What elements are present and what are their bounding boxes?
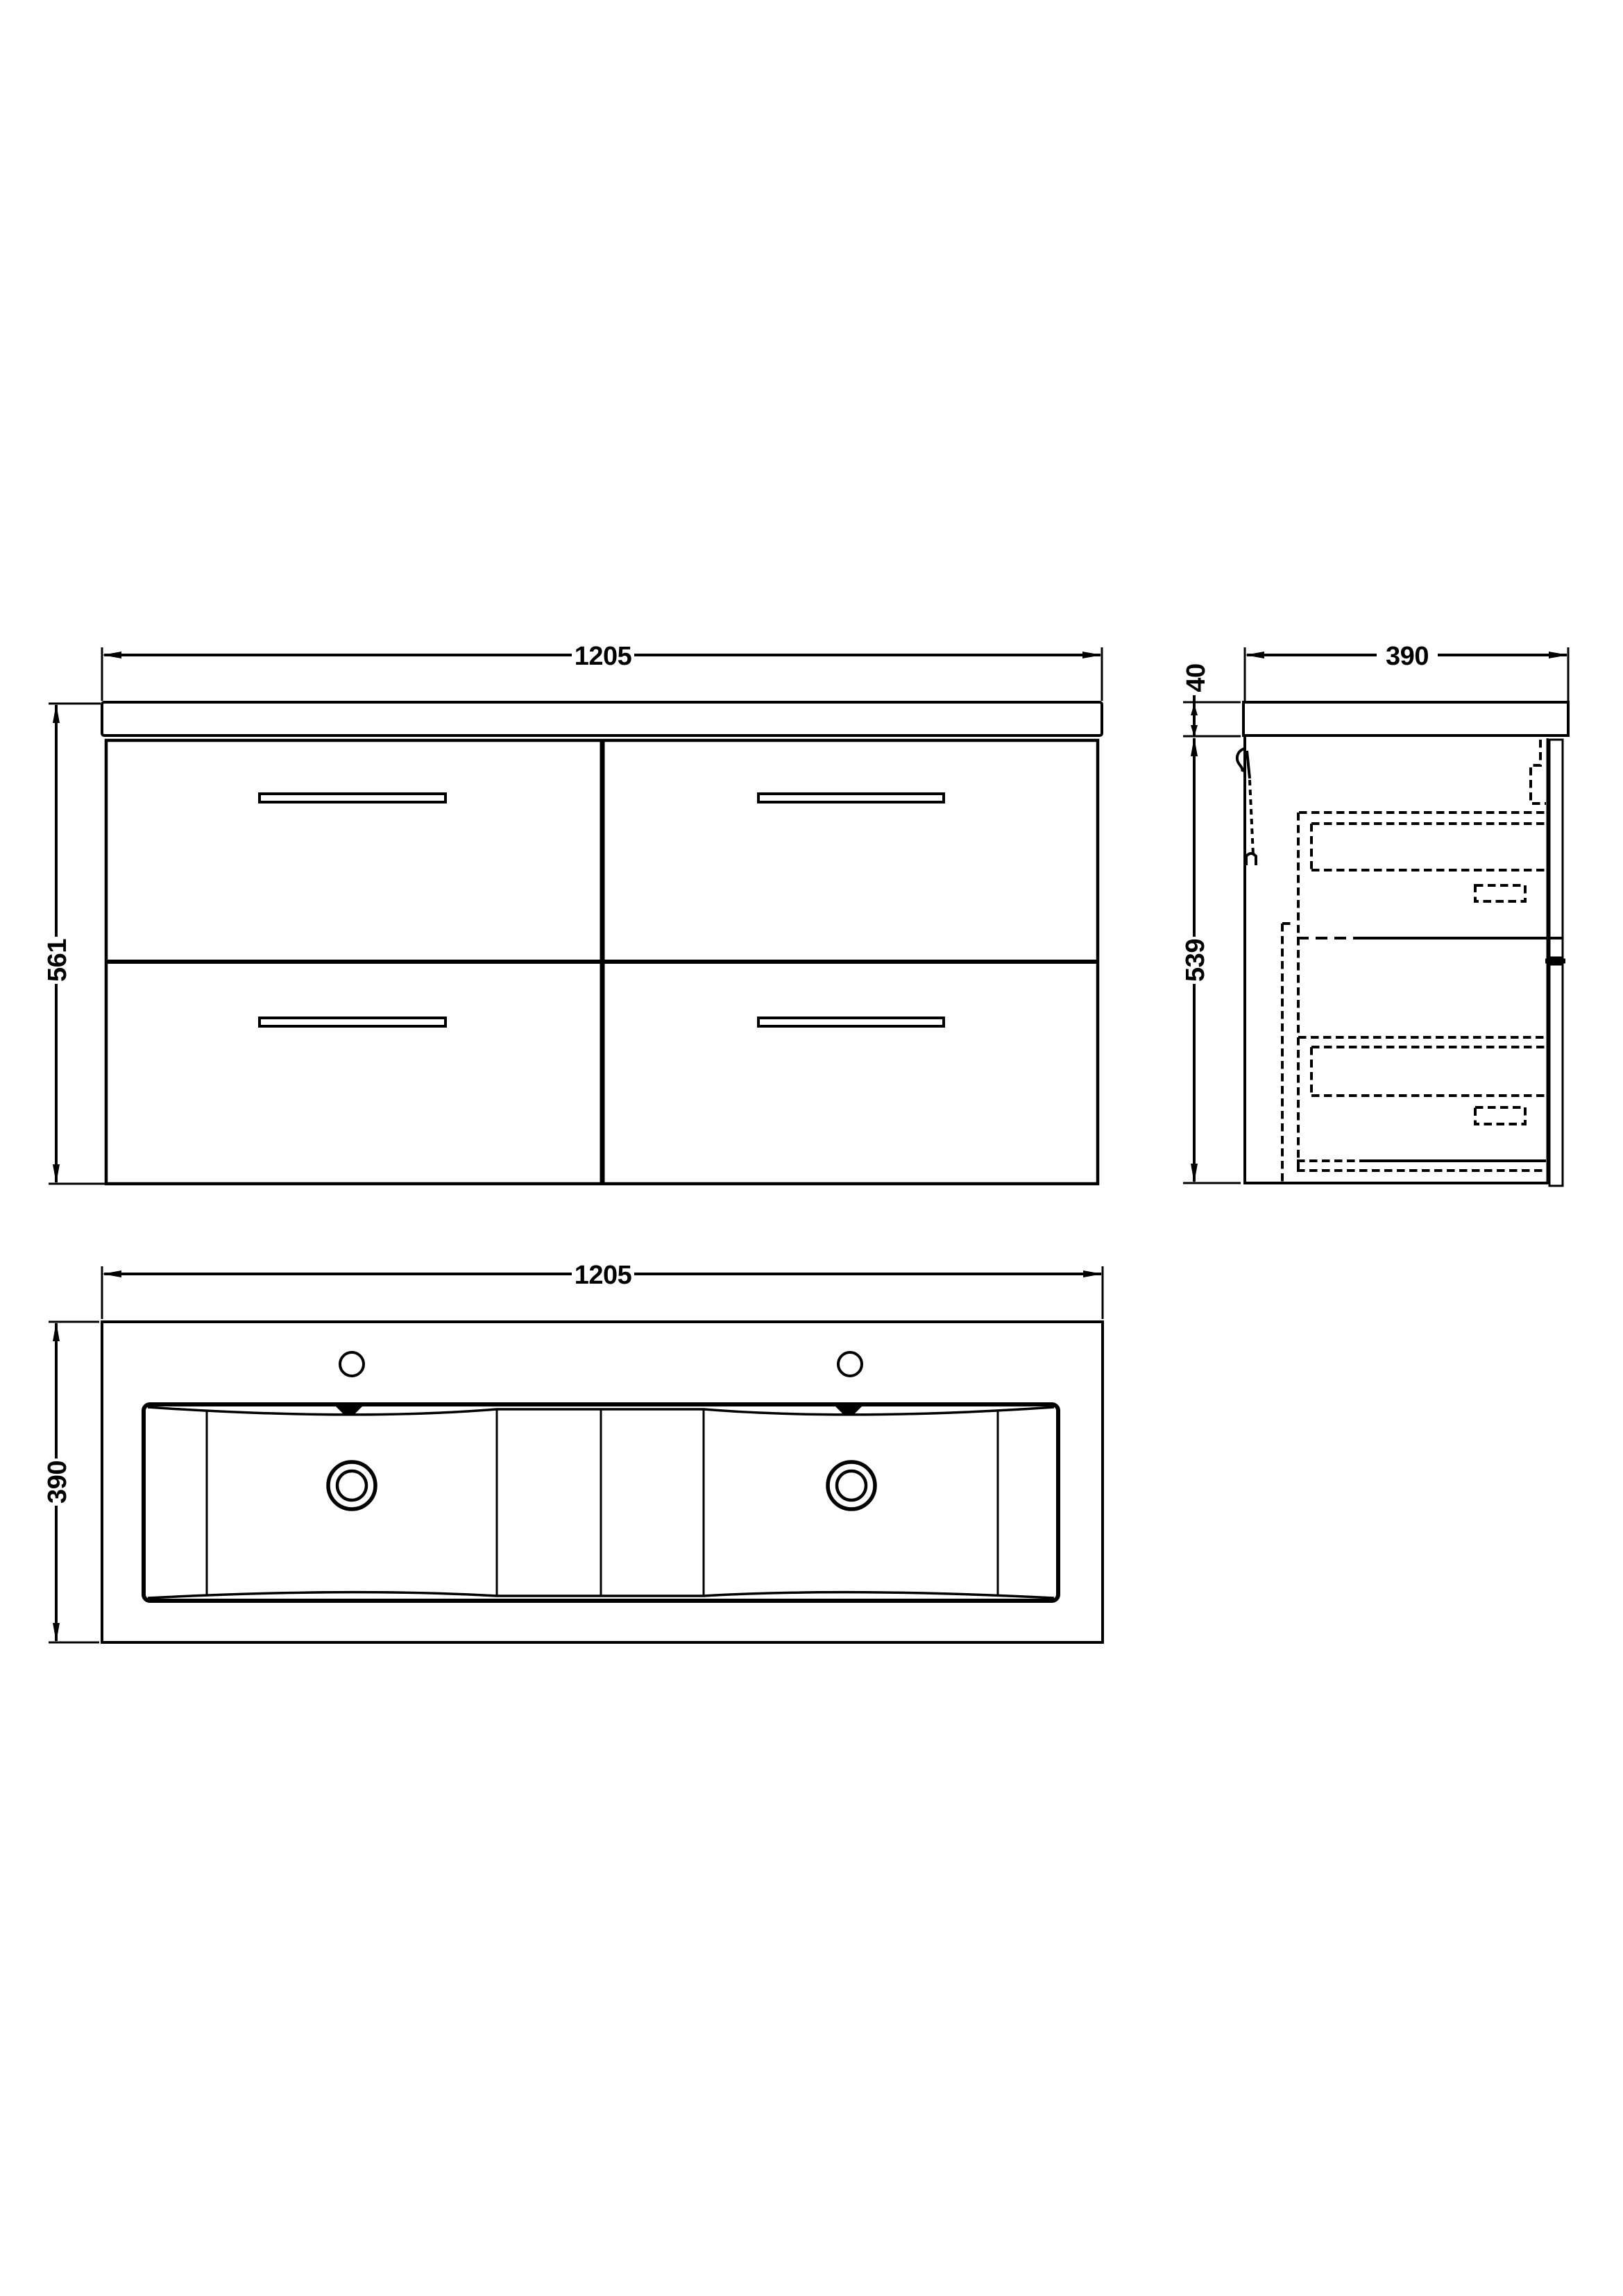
svg-text:390: 390 (43, 1461, 72, 1504)
svg-text:390: 390 (1386, 642, 1429, 671)
svg-text:1205: 1205 (575, 642, 632, 671)
svg-text:40: 40 (1182, 663, 1211, 692)
svg-text:539: 539 (1181, 939, 1210, 982)
svg-text:561: 561 (43, 939, 72, 982)
svg-text:1205: 1205 (575, 1261, 632, 1290)
